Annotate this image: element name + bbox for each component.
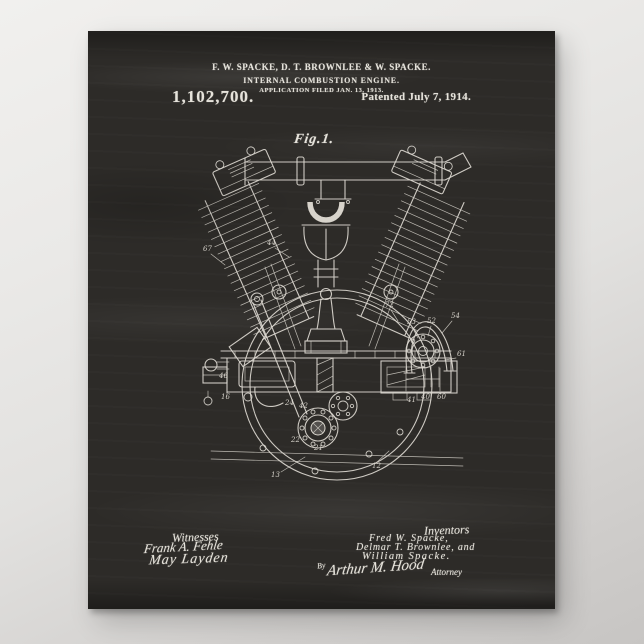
- svg-text:60: 60: [437, 393, 446, 401]
- svg-text:22: 22: [290, 436, 300, 444]
- svg-text:16: 16: [221, 393, 230, 401]
- attorney-label: Attorney: [431, 567, 462, 577]
- engine-patent-drawing: 44 67 72 53 52 54 61 46 16 24 42 22 21 4…: [195, 145, 475, 485]
- magneto: [404, 322, 456, 391]
- patent-number: 1,102,700.: [172, 87, 254, 107]
- svg-text:40: 40: [420, 393, 430, 401]
- svg-text:52: 52: [427, 317, 436, 325]
- svg-text:53: 53: [407, 318, 416, 326]
- svg-text:24: 24: [284, 399, 294, 407]
- svg-text:21: 21: [313, 444, 323, 452]
- patent-poster: F. W. SPACKE, D. T. BROWNLEE & W. SPACKE…: [88, 31, 555, 609]
- witness-signature-2: May Layden: [148, 551, 230, 570]
- attorney-signature: Arthur M. Hood: [326, 557, 425, 581]
- svg-text:61: 61: [457, 350, 466, 358]
- patent-date: Patented July 7, 1914.: [361, 91, 471, 103]
- left-cylinder-fins: [196, 178, 317, 342]
- svg-text:54: 54: [451, 312, 460, 320]
- svg-text:12: 12: [372, 462, 381, 470]
- carburetor: [302, 202, 350, 353]
- svg-text:67: 67: [203, 245, 212, 253]
- svg-text:41: 41: [406, 396, 416, 404]
- by-label: By: [316, 560, 326, 570]
- patent-title-line: INTERNAL COMBUSTION ENGINE.: [88, 76, 555, 85]
- intake-manifold: [245, 153, 471, 204]
- patent-application-line: APPLICATION FILED JAN. 13, 1913.: [88, 87, 555, 94]
- svg-text:46: 46: [218, 372, 228, 380]
- svg-text:44: 44: [266, 239, 276, 247]
- left-cylinder-head: [209, 145, 276, 196]
- right-cylinder-head: [391, 145, 455, 194]
- svg-text:72: 72: [385, 301, 394, 309]
- patent-names-line: F. W. SPACKE, D. T. BROWNLEE & W. SPACKE…: [88, 62, 555, 72]
- svg-text:13: 13: [271, 471, 280, 479]
- svg-text:42: 42: [298, 402, 308, 410]
- page-background: F. W. SPACKE, D. T. BROWNLEE & W. SPACKE…: [0, 0, 644, 644]
